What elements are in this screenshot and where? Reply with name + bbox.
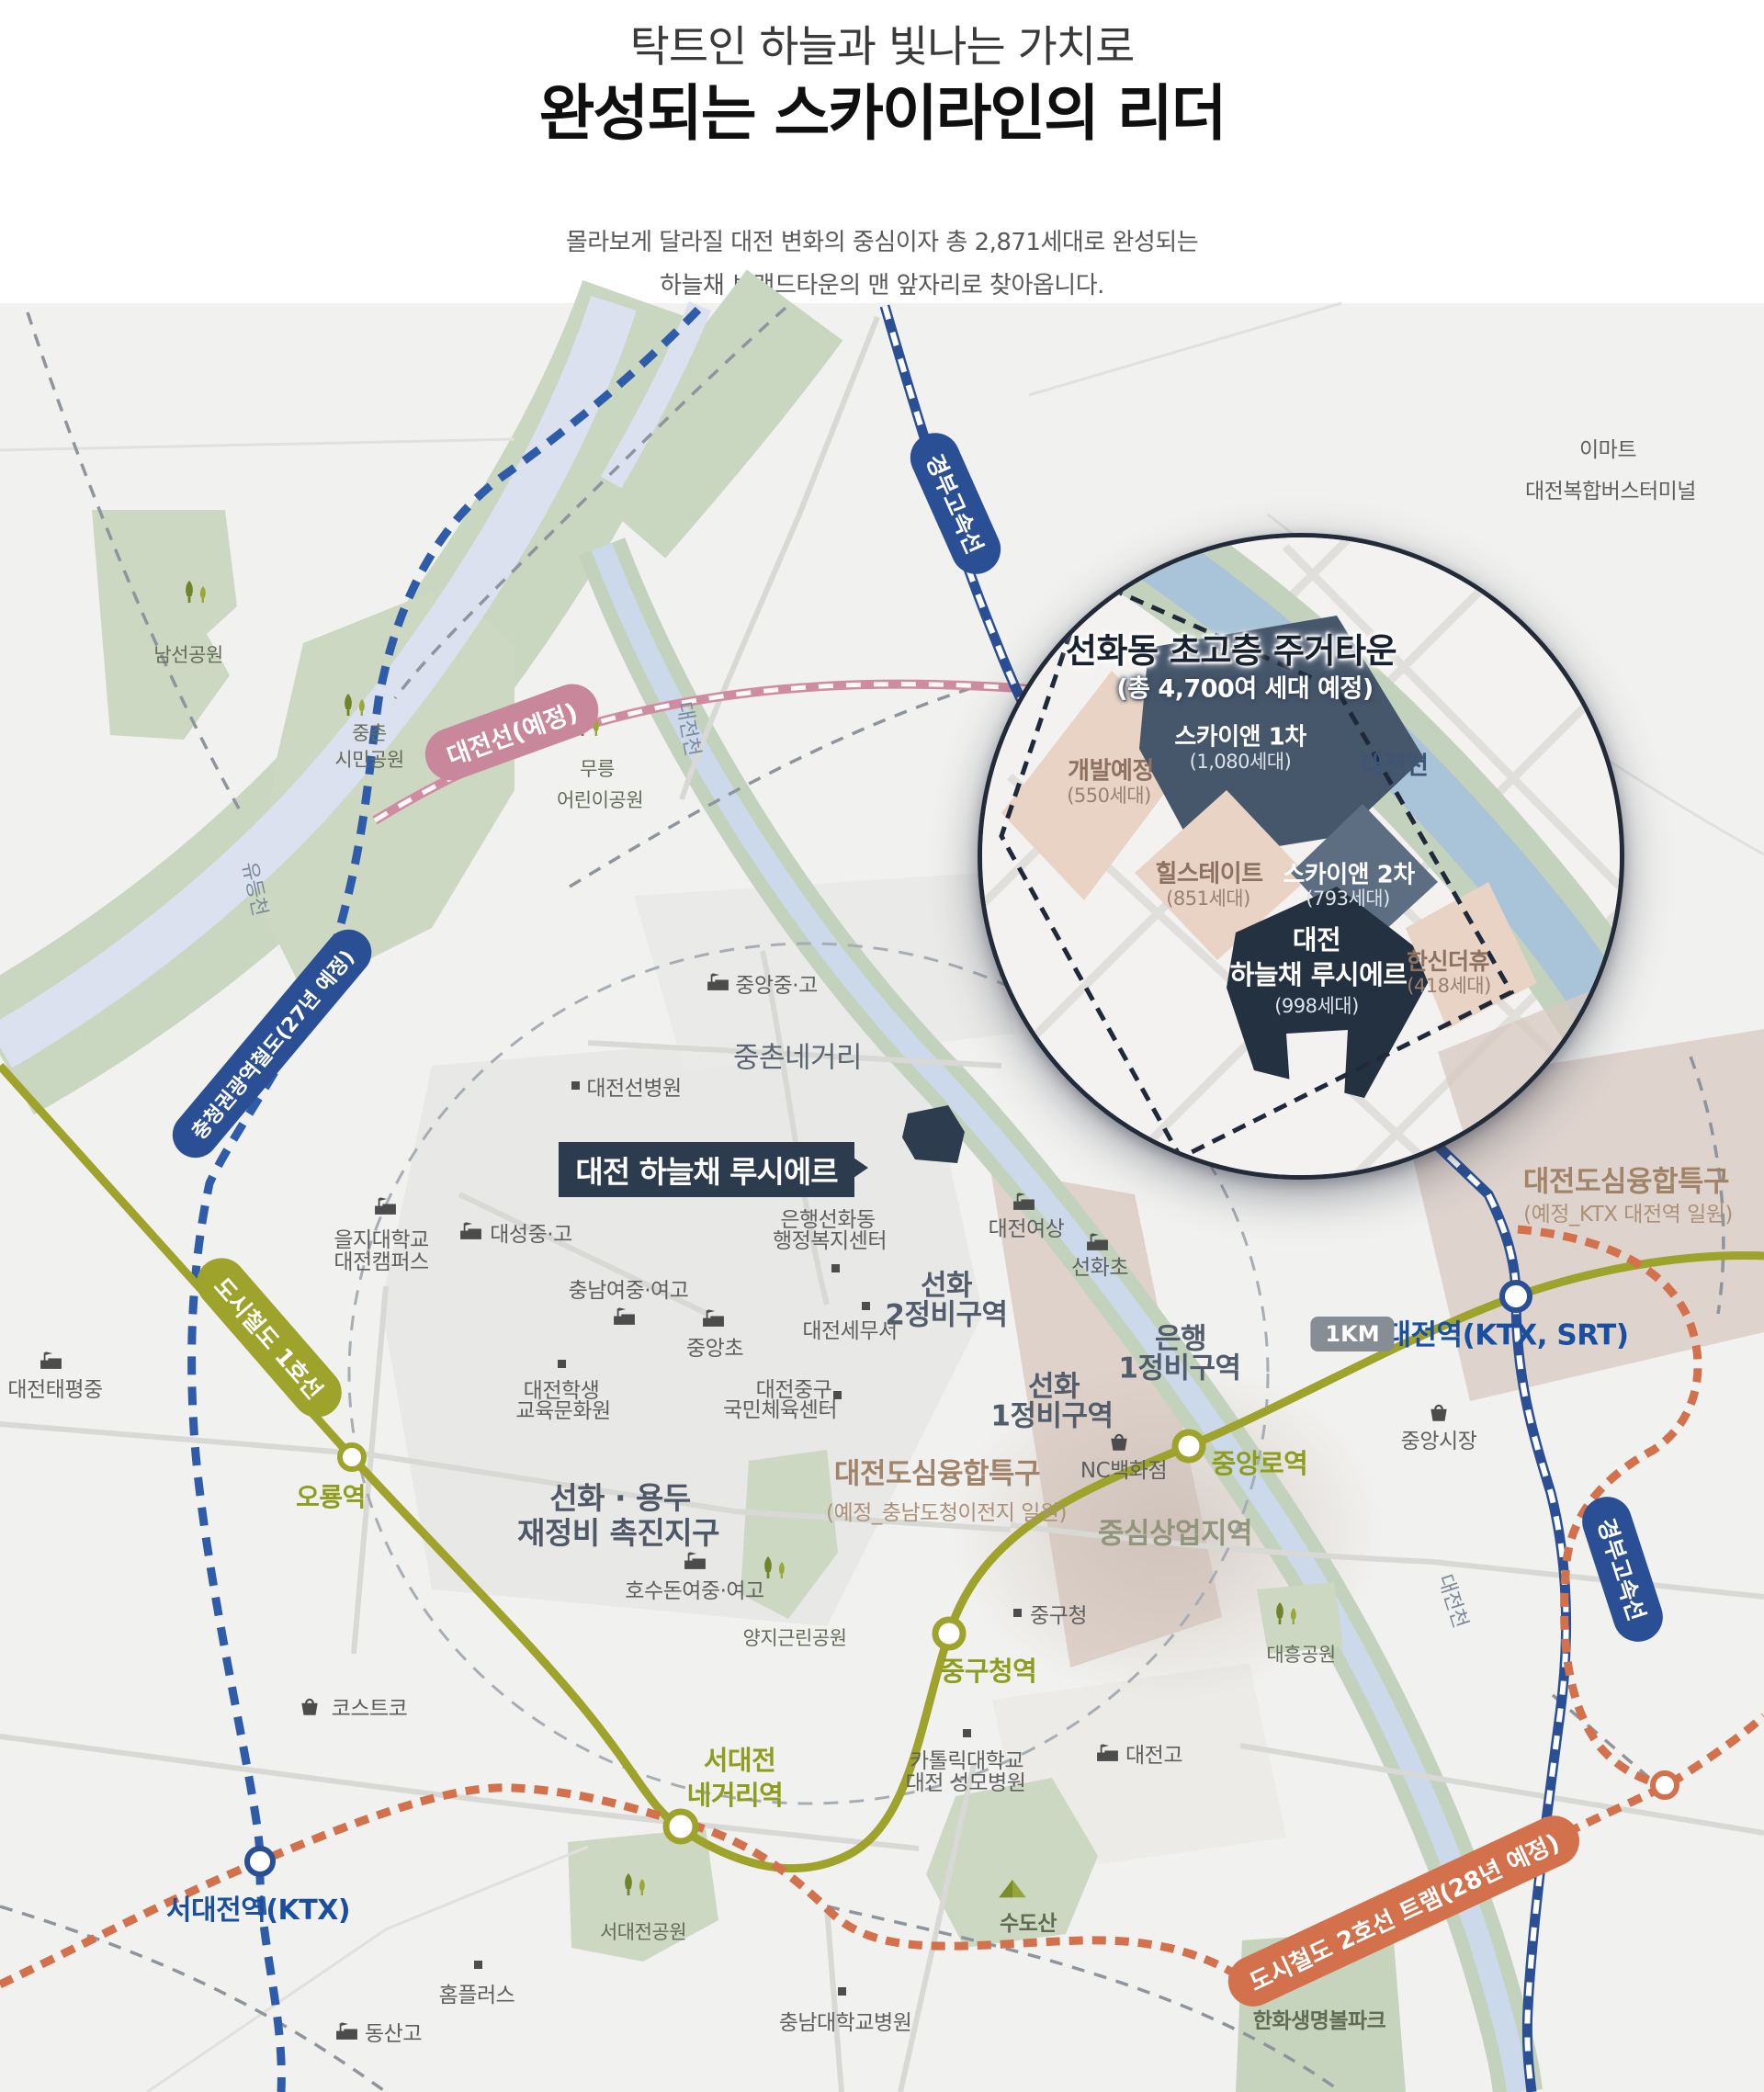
poi-label-seonhwa-elem: 선화초 xyxy=(1071,1250,1128,1281)
poi-bullet xyxy=(833,1391,842,1399)
poi-label-student-center-2: 교육문화원 xyxy=(515,1393,610,1424)
inset-label-hill-units: (851세대) xyxy=(1166,884,1250,911)
park-label-sudosan: 수도산 xyxy=(1000,1905,1057,1937)
poi-label-daeseong: 대성중·고 xyxy=(490,1216,571,1248)
poi-label-jungang-elem: 중앙초 xyxy=(686,1330,743,1362)
inset-label-dev-units: (550세대) xyxy=(1067,781,1151,809)
station-label-junggucheong: 중구청역 xyxy=(941,1650,1037,1689)
inset-label-lucierre-2: 하늘채 루시에르 xyxy=(1230,954,1408,992)
area-label-seonhwa1-2: 1정비구역 xyxy=(990,1393,1113,1434)
area-label-central-commercial: 중심상업지역 xyxy=(1098,1510,1252,1552)
poi-label-nc-department: NC백화점 xyxy=(1080,1453,1167,1484)
site-callout: 대전 하늘채 루시에르 xyxy=(559,1142,854,1197)
park-label-mureung-1: 무릉 xyxy=(580,754,615,782)
inset-label-lucierre-units: (998세대) xyxy=(1274,991,1359,1019)
station-label-seodaejeon-negeori-2: 네거리역 xyxy=(687,1774,784,1813)
station-label-seodaejeon-negeori-1: 서대전 xyxy=(704,1739,776,1778)
station-label-daejeon: 대전역(KTX, SRT) xyxy=(1385,1312,1629,1353)
poi-label-chungnam-univ-hospital: 충남대학교병원 xyxy=(779,2005,912,2036)
area-label-special-district-2: 대전도심융합특구 xyxy=(1523,1159,1729,1200)
poi-bullet xyxy=(571,1081,580,1090)
poi-label-daejeon-sun-hospital: 대전선병원 xyxy=(586,1070,681,1102)
poi-label-eulji-2: 대전캠퍼스 xyxy=(334,1244,428,1275)
park-label-yangji: 양지근린공원 xyxy=(743,1623,847,1651)
area-label-special-district-1: 대전도심융합특구 xyxy=(834,1451,1040,1492)
poi-label-gu-office: 중구청 xyxy=(1030,1598,1087,1629)
inset-title: 선화동 초고층 주거타운 xyxy=(1066,623,1396,673)
poi-label-costco: 코스트코 xyxy=(332,1691,408,1722)
park-label-seodaejeon: 서대전공원 xyxy=(600,1917,686,1945)
poi-label-jungang-market: 중앙시장 xyxy=(1401,1423,1477,1454)
station-label-seodaejeon-ktx: 서대전역(KTX) xyxy=(166,1887,350,1928)
poi-bullet xyxy=(838,1987,846,1996)
inset-label-hanshin-units: (418세대) xyxy=(1407,971,1491,999)
poi-label-haengbok-center-2: 행정복지센터 xyxy=(773,1223,887,1254)
inset-label-lucierre-1: 대전 xyxy=(1293,919,1340,957)
poi-bullet xyxy=(831,1264,840,1272)
area-label-special-district-1-sub: (예정_충남도청이전지 일원) xyxy=(826,1495,1067,1526)
poi-bullet xyxy=(862,1302,870,1310)
poi-bullet xyxy=(963,1729,971,1737)
poi-label-daejeon-girls: 대전여상 xyxy=(989,1211,1065,1242)
poi-label-tax-office: 대전세무서 xyxy=(802,1313,897,1344)
station-label-oryong: 오룡역 xyxy=(296,1477,366,1514)
park-label-mureung-2: 어린이공원 xyxy=(557,786,643,813)
poi-label-bus-terminal: 대전복합버스터미널 xyxy=(1525,473,1696,504)
area-label-jungchon-negeori: 중촌네거리 xyxy=(733,1035,862,1076)
badge-distance-1km: 1KM xyxy=(1310,1317,1394,1351)
poi-label-chungnam-girls: 충남여중·여고 xyxy=(569,1272,689,1304)
park-label-jungchon-2: 시민공원 xyxy=(334,745,403,773)
poi-label-dongsan: 동산고 xyxy=(365,2016,422,2047)
station-label-jungangno: 중앙로역 xyxy=(1212,1442,1308,1481)
poi-label-catholic-2: 대전 성모병원 xyxy=(906,1765,1026,1796)
inset-label-sky2-units: (793세대) xyxy=(1306,884,1390,911)
poi-label-jungang-mhs: 중앙중·고 xyxy=(735,967,817,999)
park-label-hanwha-ballpark: 한화생명볼파크 xyxy=(1253,2003,1386,2034)
area-label-seonhwa-yongdu-2: 재정비 촉진지구 xyxy=(517,1509,719,1553)
poi-label-homeplus: 홈플러스 xyxy=(439,1977,515,2008)
poi-label-hosudon: 호수돈여중·여고 xyxy=(625,1573,763,1604)
poi-bullet xyxy=(474,1961,482,1969)
area-label-seonhwa2-2: 2정비구역 xyxy=(885,1292,1007,1333)
poi-label-taepyeong: 대전태평중 xyxy=(7,1372,102,1403)
poi-label-sports-center-2: 국민체육센터 xyxy=(723,1392,837,1423)
area-label-eunhaeng1-2: 1정비구역 xyxy=(1118,1345,1240,1386)
park-label-namseon: 남선공원 xyxy=(153,640,222,668)
poi-label-emart: 이마트 xyxy=(1579,432,1636,463)
park-label-jungchon-1: 중촌 xyxy=(352,718,387,746)
poi-bullet xyxy=(558,1360,566,1368)
inset-subtitle: (총 4,700여 세대 예정) xyxy=(1116,669,1373,705)
park-label-daeheung: 대흥공원 xyxy=(1266,1640,1335,1668)
inset-label-river: 대전천 xyxy=(1361,746,1428,782)
area-label-special-district-2-sub: (예정_KTX 대전역 일원) xyxy=(1523,1196,1733,1227)
inset-label-sky1-units: (1,080세대) xyxy=(1190,747,1292,775)
poi-bullet xyxy=(1013,1609,1022,1617)
inset-detail-circle: 선화동 초고층 주거타운 (총 4,700여 세대 예정) 개발예정 (550세… xyxy=(978,533,1624,1180)
poi-label-daejeon-high: 대전고 xyxy=(1125,1737,1182,1769)
